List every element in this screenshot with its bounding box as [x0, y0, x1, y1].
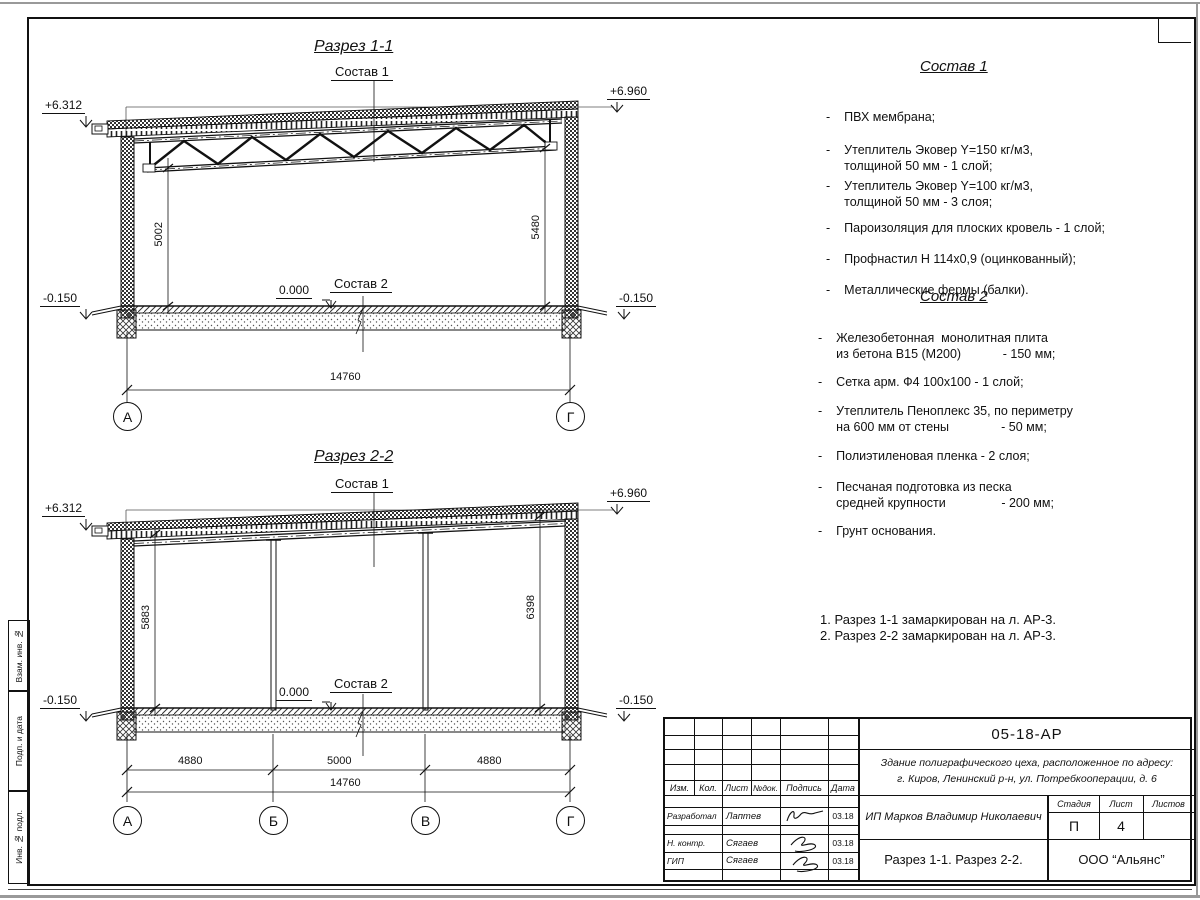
item-text: ПВХ мембрана;	[844, 110, 935, 126]
signature-syagaev	[781, 831, 827, 875]
axis-letter: А	[123, 813, 132, 829]
tb-doc-code: 05-18-АР	[860, 719, 1194, 749]
section1-axis-a: А	[113, 402, 142, 431]
section2-title: Разрез 2-2	[314, 448, 393, 466]
item-text: Утеплитель Эковер Y=100 кг/м3, толщиной …	[844, 179, 1033, 210]
axis-letter: Г	[567, 813, 575, 829]
section1-elev-minus-right: -0.150	[616, 291, 656, 307]
bullet: -	[818, 449, 822, 465]
item-text: Полиэтиленовая пленка - 2 слоя;	[836, 449, 1030, 465]
item-text: Песчаная подготовка из песка средней кру…	[836, 480, 1054, 511]
bullet: -	[826, 143, 830, 174]
sostav2-item: -Сетка арм. Ф4 100х100 - 1 слой;	[818, 375, 1024, 391]
axis-letter: А	[123, 409, 132, 425]
tb-role-razrabotal: Разработал	[665, 807, 724, 825]
section1-elev-right: +6.960	[607, 84, 650, 100]
sostav2-heading: Состав 2	[920, 288, 988, 305]
section1-dim-right: 5480	[530, 215, 542, 239]
tb-company: ООО “Альянс”	[1049, 839, 1194, 880]
tb-role-nkontr: Н. контр.	[665, 834, 724, 852]
tb-client: ИП Марков Владимир Николаевич	[860, 795, 1047, 839]
section2-sostav2-callout: Состав 2	[330, 676, 392, 693]
item-text: Пароизоляция для плоских кровель - 1 сло…	[844, 221, 1105, 237]
section1-sostav2-callout: Состав 2	[330, 276, 392, 293]
tb-address-line1: Здание полиграфического цеха, расположен…	[881, 756, 1173, 772]
section1-title: Разрез 1-1	[314, 38, 393, 56]
bullet: -	[826, 252, 830, 268]
section2-axis-g: Г	[556, 806, 585, 835]
title-block: Изм. Кол. Лист №док. Подпись Дата Разраб…	[663, 717, 1192, 882]
section1-dim-total: 14760	[330, 371, 361, 383]
sostav2-item: -Полиэтиленовая пленка - 2 слоя;	[818, 449, 1030, 465]
item-text: Профнастил Н 114х0,9 (оцинкованный);	[844, 252, 1076, 268]
tb-name-laptev: Лаптев	[722, 807, 784, 825]
item-text: Утеплитель Эковер Y=150 кг/м3, толщиной …	[844, 143, 1033, 174]
section2-axis-v: В	[411, 806, 440, 835]
section2-elev-minus-left: -0.150	[40, 693, 80, 709]
bullet: -	[818, 480, 822, 511]
bullet: -	[826, 221, 830, 237]
bullet: -	[826, 283, 830, 299]
sostav2-item: -Песчаная подготовка из песка средней кр…	[818, 480, 1054, 511]
tb-name-syagaev-2: Сягаев	[722, 852, 784, 869]
sostav2-item: -Грунт основания.	[818, 524, 936, 540]
section2-elev-zero: 0.000	[276, 685, 312, 701]
tb-sheets-label: Листов	[1143, 795, 1194, 812]
sostav1-heading: Состав 1	[920, 58, 988, 75]
sostav1-item: -Пароизоляция для плоских кровель - 1 сл…	[826, 221, 1105, 237]
section1-sostav1-callout: Состав 1	[331, 64, 393, 81]
item-text: Сетка арм. Ф4 100х100 - 1 слой;	[836, 375, 1023, 391]
section1-dim-left: 5002	[153, 222, 165, 246]
section1-elev-minus-left: -0.150	[40, 291, 80, 307]
bullet: -	[818, 375, 822, 391]
signature-laptev	[781, 807, 827, 825]
bullet: -	[818, 404, 822, 435]
axis-letter: Б	[269, 813, 278, 829]
section2-dim-left: 5883	[140, 605, 152, 629]
section1-elev-left: +6.312	[42, 98, 85, 114]
tb-name-syagaev-1: Сягаев	[722, 834, 784, 852]
bullet: -	[826, 110, 830, 126]
section2-dim-total: 14760	[330, 777, 361, 789]
section2-elev-left: +6.312	[42, 501, 85, 517]
bullet: -	[818, 524, 822, 540]
bullet: -	[826, 179, 830, 210]
sostav2-item: -Утеплитель Пеноплекс 35, по периметру н…	[818, 404, 1073, 435]
section2-elev-minus-right: -0.150	[616, 693, 656, 709]
tb-role-gip: ГИП	[665, 852, 724, 869]
section1-axis-g: Г	[556, 402, 585, 431]
section2-elev-right: +6.960	[607, 486, 650, 502]
tb-col-ndok: №док.	[751, 780, 780, 795]
sostav1-item: -Профнастил Н 114х0,9 (оцинкованный);	[826, 252, 1076, 268]
tb-address-line2: г. Киров, Ленинский р-н, ул. Потребкоопе…	[897, 772, 1157, 788]
tb-date-3: 03.18	[828, 852, 858, 869]
section2-axis-a: А	[113, 806, 142, 835]
note-line-2: 2. Разрез 2-2 замаркирован на л. АР-3.	[820, 628, 1056, 645]
note-line-1: 1. Разрез 1-1 замаркирован на л. АР-3.	[820, 612, 1056, 629]
tb-date-1: 03.18	[828, 807, 858, 825]
tb-sheets-value	[1143, 812, 1194, 839]
section2-sostav1-callout: Состав 1	[331, 476, 393, 493]
tb-sheet-label: Лист	[1099, 795, 1143, 812]
tb-stage-label: Стадия	[1049, 795, 1099, 812]
section2-dim-span1: 4880	[178, 755, 202, 767]
sostav1-item: -Утеплитель Эковер Y=100 кг/м3, толщиной…	[826, 179, 1033, 210]
section1-elev-zero: 0.000	[276, 283, 312, 299]
sostav1-item: -ПВХ мембрана;	[826, 110, 935, 126]
section2-axis-b: Б	[259, 806, 288, 835]
tb-col-data: Дата	[828, 780, 858, 795]
drawing-sheet: { "section1": { "title": "Разрез 1-1", "…	[0, 0, 1200, 900]
tb-col-list: Лист	[722, 780, 751, 795]
axis-letter: В	[421, 813, 430, 829]
section2-dim-right: 6398	[525, 595, 537, 619]
sostav2-item: -Железобетонная монолитная плита из бето…	[818, 331, 1055, 362]
item-text: Железобетонная монолитная плита из бетон…	[836, 331, 1055, 362]
section2-dim-span2: 5000	[327, 755, 351, 767]
item-text: Утеплитель Пеноплекс 35, по периметру на…	[836, 404, 1073, 435]
tb-col-izm: Изм.	[665, 780, 694, 795]
tb-col-podpis: Подпись	[780, 780, 828, 795]
axis-letter: Г	[567, 409, 575, 425]
tb-address: Здание полиграфического цеха, расположен…	[860, 749, 1194, 795]
tb-sheet-title: Разрез 1-1. Разрез 2-2.	[860, 839, 1047, 880]
tb-col-kol: Кол.	[694, 780, 722, 795]
tb-date-2: 03.18	[828, 834, 858, 852]
tb-stage-value: П	[1049, 812, 1099, 839]
item-text: Грунт основания.	[836, 524, 936, 540]
section2-dim-span3: 4880	[477, 755, 501, 767]
sostav1-item: -Утеплитель Эковер Y=150 кг/м3, толщиной…	[826, 143, 1033, 174]
bullet: -	[818, 331, 822, 362]
tb-sheet-value: 4	[1099, 812, 1143, 839]
